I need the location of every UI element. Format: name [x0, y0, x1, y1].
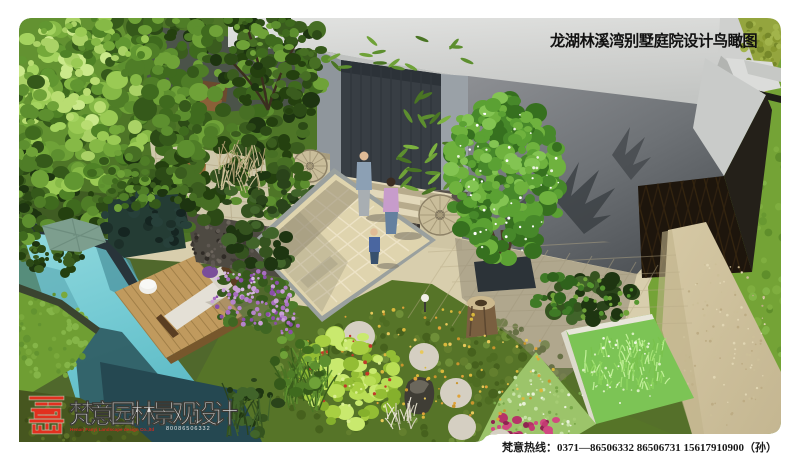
- svg-text:梵意园林景观设计: 梵意园林景观设计: [69, 399, 238, 429]
- svg-text:Henan Fanyi Landscape design C: Henan Fanyi Landscape design Co.,ltd: [70, 427, 154, 432]
- svg-text:80086506332: 80086506332: [166, 426, 211, 432]
- svg-text:龙湖林溪湾别墅庭院设计鸟瞰图: 龙湖林溪湾别墅庭院设计鸟瞰图: [549, 32, 757, 50]
- svg-text:梵意热线：0371—86506332 86506731: 梵意热线：0371—86506332 86506731 15617910900（…: [502, 440, 777, 454]
